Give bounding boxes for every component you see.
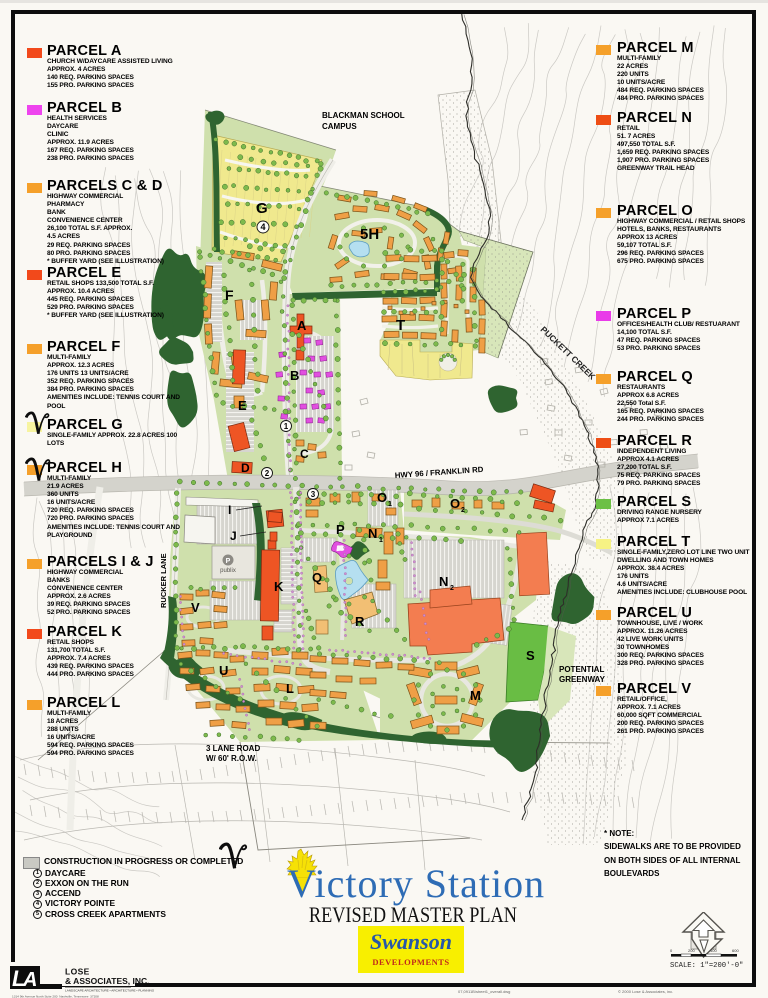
svg-text:I: I: [228, 503, 231, 517]
svg-text:1: 1: [379, 537, 383, 544]
svg-text:Q: Q: [312, 570, 322, 585]
svg-text:T: T: [396, 317, 405, 334]
svg-text:F: F: [225, 287, 234, 303]
svg-text:J: J: [230, 529, 237, 543]
svg-text:1: 1: [284, 422, 289, 431]
svg-text:G: G: [256, 200, 268, 217]
svg-text:GREENWAY: GREENWAY: [559, 675, 606, 684]
svg-text:SCALE: 1"=200'-0": SCALE: 1"=200'-0": [670, 962, 743, 970]
svg-text:& ASSOCIATES, INC.: & ASSOCIATES, INC.: [65, 976, 150, 986]
svg-text:K: K: [274, 579, 284, 594]
svg-text:RUCKER LANE: RUCKER LANE: [159, 553, 168, 608]
svg-text:A: A: [297, 318, 307, 333]
svg-text:U: U: [219, 663, 228, 678]
svg-text:B: B: [290, 368, 299, 383]
svg-text:CAMPUS: CAMPUS: [322, 122, 357, 131]
svg-text:P: P: [226, 558, 231, 565]
svg-text:1: 1: [388, 501, 392, 508]
svg-text:P: P: [336, 522, 345, 537]
svg-text:LOSE: LOSE: [65, 967, 90, 977]
svg-text:publix: publix: [220, 568, 236, 574]
svg-text:200: 200: [688, 948, 695, 953]
svg-text:O: O: [377, 490, 387, 505]
svg-text:4: 4: [260, 222, 265, 232]
svg-text:2: 2: [450, 585, 454, 592]
svg-text:400: 400: [710, 948, 717, 953]
svg-text:O: O: [450, 496, 460, 511]
svg-text:5H: 5H: [360, 226, 379, 243]
svg-text:0: 0: [670, 948, 673, 953]
svg-text:3 LANE ROAD: 3 LANE ROAD: [206, 744, 260, 753]
svg-text:600: 600: [732, 948, 739, 953]
svg-text:2: 2: [265, 469, 270, 478]
svg-text:L: L: [286, 681, 294, 696]
svg-text:HWY 96 / FRANKLIN RD: HWY 96 / FRANKLIN RD: [395, 465, 484, 480]
svg-text:POTENTIAL: POTENTIAL: [559, 665, 604, 674]
svg-text:N: N: [368, 526, 377, 541]
svg-text:3: 3: [311, 490, 316, 499]
svg-text:W/ 60' R.O.W.: W/ 60' R.O.W.: [206, 754, 257, 763]
svg-text:BLACKMAN SCHOOL: BLACKMAN SCHOOL: [322, 111, 405, 120]
svg-text:N: N: [439, 574, 448, 589]
svg-text:LANDSCAPE ARCHITECTURE • ARCHI: LANDSCAPE ARCHITECTURE • ARCHITECTURE • …: [65, 989, 155, 993]
svg-text:M: M: [470, 688, 481, 703]
svg-text:2: 2: [461, 507, 465, 514]
svg-text:A: A: [22, 969, 37, 991]
svg-text:C: C: [300, 447, 309, 461]
svg-text:E: E: [238, 398, 247, 413]
svg-text:D: D: [241, 461, 250, 475]
svg-text:V: V: [191, 600, 200, 615]
svg-text:S: S: [526, 648, 535, 663]
svg-text:R: R: [355, 614, 365, 629]
svg-text:1314 9th Avenue North Suite 20: 1314 9th Avenue North Suite 200 Nashvill…: [12, 995, 99, 998]
